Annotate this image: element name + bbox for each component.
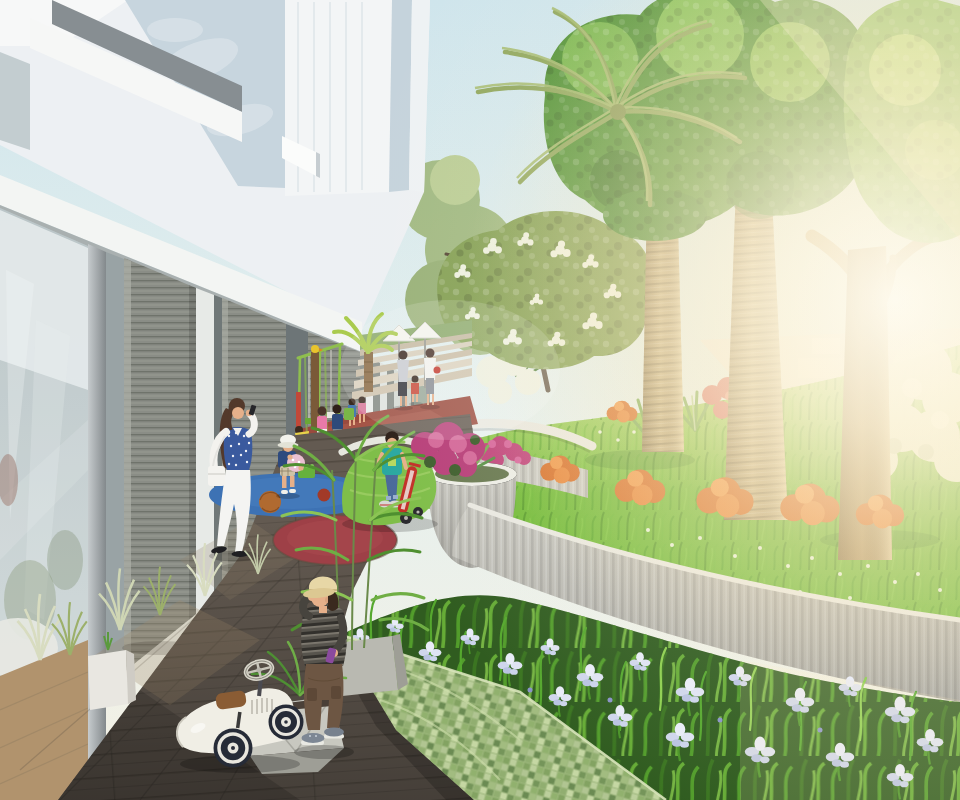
woman-face xyxy=(232,407,244,419)
car-wheel-front xyxy=(214,729,253,768)
toy-ball-red xyxy=(318,489,331,502)
glass-curtain-wall xyxy=(0,208,88,800)
car-wheel-rear xyxy=(269,705,304,740)
toy-ball-orange xyxy=(259,491,281,513)
window-mullion xyxy=(88,244,106,800)
garden-terrace-rendering xyxy=(0,0,960,800)
handbag xyxy=(208,466,225,486)
red-post xyxy=(296,392,301,428)
green-toy-bin xyxy=(344,408,354,420)
